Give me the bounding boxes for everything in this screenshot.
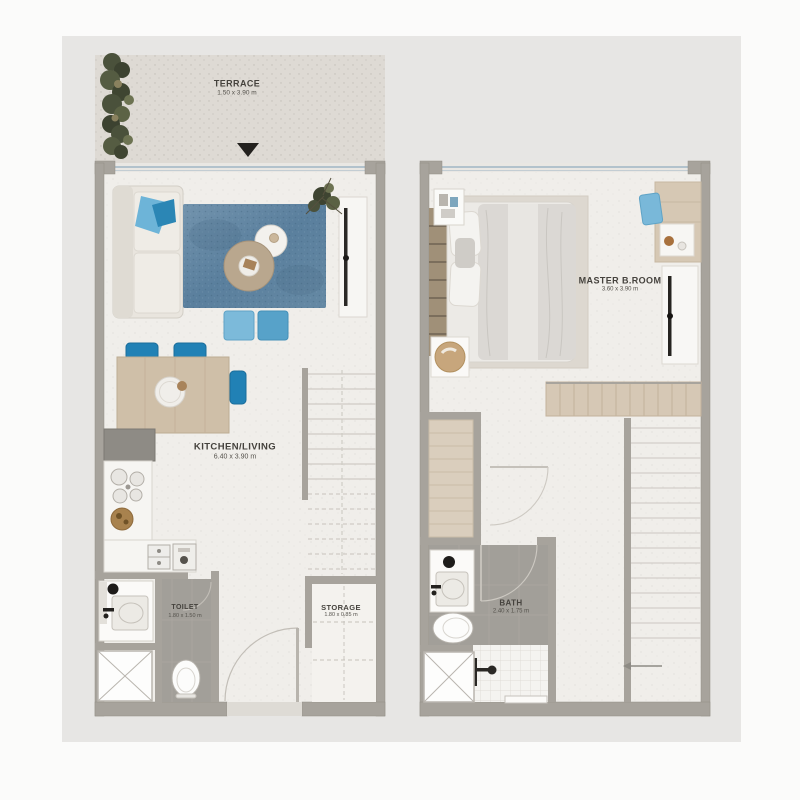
bedroom-tv-unit-icon [662,266,698,364]
living-room-window [104,163,376,172]
shower-area [473,645,548,703]
entrance-threshold [227,702,302,716]
storage-dims: 1.80 x 0.85 m [321,612,361,619]
hall-closet-icon [429,420,473,537]
wardrobe-icon [546,382,701,416]
master-bedroom-dims: 3.60 x 3.90 m [579,287,662,295]
cushion-icon [455,238,475,268]
bath-washbasin-area [430,550,474,612]
wc-icon [433,613,473,643]
door-sill [505,696,547,703]
dining-table-icon [117,343,246,433]
kitchen-living-dims: 6.40 x 3.90 m [194,454,276,463]
oven-icon [173,544,196,570]
shaft-icon [424,652,474,702]
fridge-icon [104,429,155,461]
floorplan-drawing [0,0,800,800]
desk-chair-icon [639,193,663,225]
kitchen-living-label: KITCHEN/LIVING 6.40 x 3.90 m [194,442,276,463]
accessory-icon [443,556,455,568]
tv-unit-icon [339,197,367,317]
terrace-label: TERRACE 1.50 x 3.90 m [214,78,260,97]
bowl-icon [111,508,133,530]
kitchen-living-name: KITCHEN/LIVING [194,442,276,454]
wall-art-icon [434,189,464,225]
coffee-table-icon [224,241,274,291]
terrace-name: TERRACE [214,78,260,89]
upper-floor-plan [420,161,710,716]
cup-icon [664,236,674,246]
storage-name: STORAGE [321,603,361,612]
storage-label: STORAGE 1.80 x 0.85 m [321,603,361,619]
bath-label: BATH 2.40 x 1.75 m [493,598,529,616]
faucet-icon [103,608,114,612]
storage-room [312,584,376,702]
washbasin-icon [436,572,468,606]
master-bedroom-label: MASTER B.ROOM 3.60 x 3.90 m [579,276,662,295]
ottoman-icon [431,337,469,377]
pouf-icon [258,311,288,340]
bath-dims: 2.40 x 1.75 m [493,608,529,616]
master-bedroom-name: MASTER B.ROOM [579,276,662,287]
washbasin-area [99,581,153,641]
dining-chair-icon [230,371,246,404]
bedroom-window [429,163,701,172]
bath-name: BATH [493,598,529,608]
faucet-icon [431,585,441,589]
shaft-icon [98,651,152,701]
accessory-icon [108,584,119,595]
sink-icon [148,545,170,569]
terrace [95,55,385,165]
toilet-room [162,579,211,702]
pillow-icon [449,261,481,307]
pouf-icon [224,311,254,340]
sofa-icon [113,186,183,318]
toilet-name: TOILET [168,604,201,613]
toilet-dims: 1.80 x 1.50 m [168,613,201,620]
toilet-label: TOILET 1.80 x 1.50 m [168,604,201,620]
terrace-dims: 1.50 x 3.90 m [214,90,260,98]
